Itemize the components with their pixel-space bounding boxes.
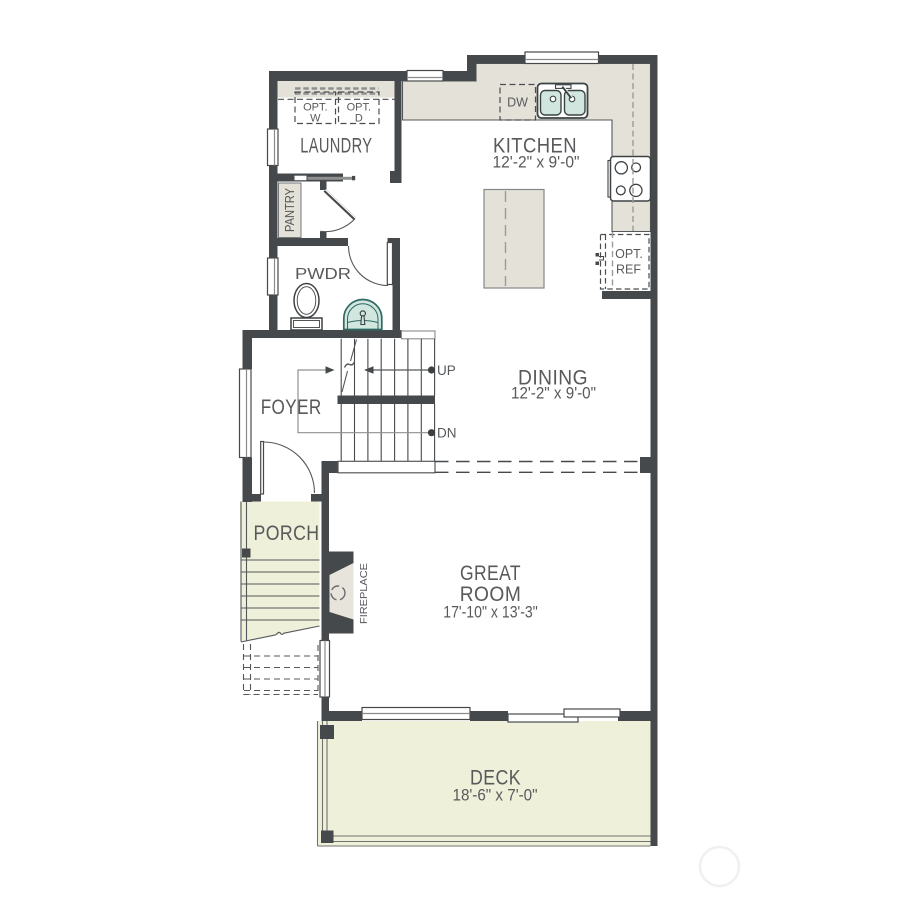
svg-text:PORCH: PORCH <box>254 522 320 545</box>
svg-text:12'-2" x 9'-0": 12'-2" x 9'-0" <box>511 384 596 403</box>
svg-text:OPT.: OPT. <box>615 247 643 261</box>
svg-text:GREAT: GREAT <box>460 562 521 585</box>
svg-text:FOYER: FOYER <box>261 396 322 419</box>
svg-text:W: W <box>310 113 321 125</box>
svg-text:LAUNDRY: LAUNDRY <box>300 135 372 158</box>
svg-text:PWDR: PWDR <box>295 266 351 283</box>
svg-text:12'-2" x 9'-0": 12'-2" x 9'-0" <box>493 153 580 172</box>
svg-text:D: D <box>355 113 363 125</box>
svg-text:REF: REF <box>616 263 641 277</box>
svg-text:17'-10" x 13'-3": 17'-10" x 13'-3" <box>443 603 538 622</box>
svg-text:FIREPLACE: FIREPLACE <box>358 563 370 624</box>
svg-text:DN: DN <box>437 426 457 441</box>
svg-text:18'-6" x 7'-0": 18'-6" x 7'-0" <box>453 785 538 804</box>
svg-text:UP: UP <box>437 363 456 378</box>
svg-text:PANTRY: PANTRY <box>282 188 297 232</box>
svg-text:DW: DW <box>507 96 528 110</box>
